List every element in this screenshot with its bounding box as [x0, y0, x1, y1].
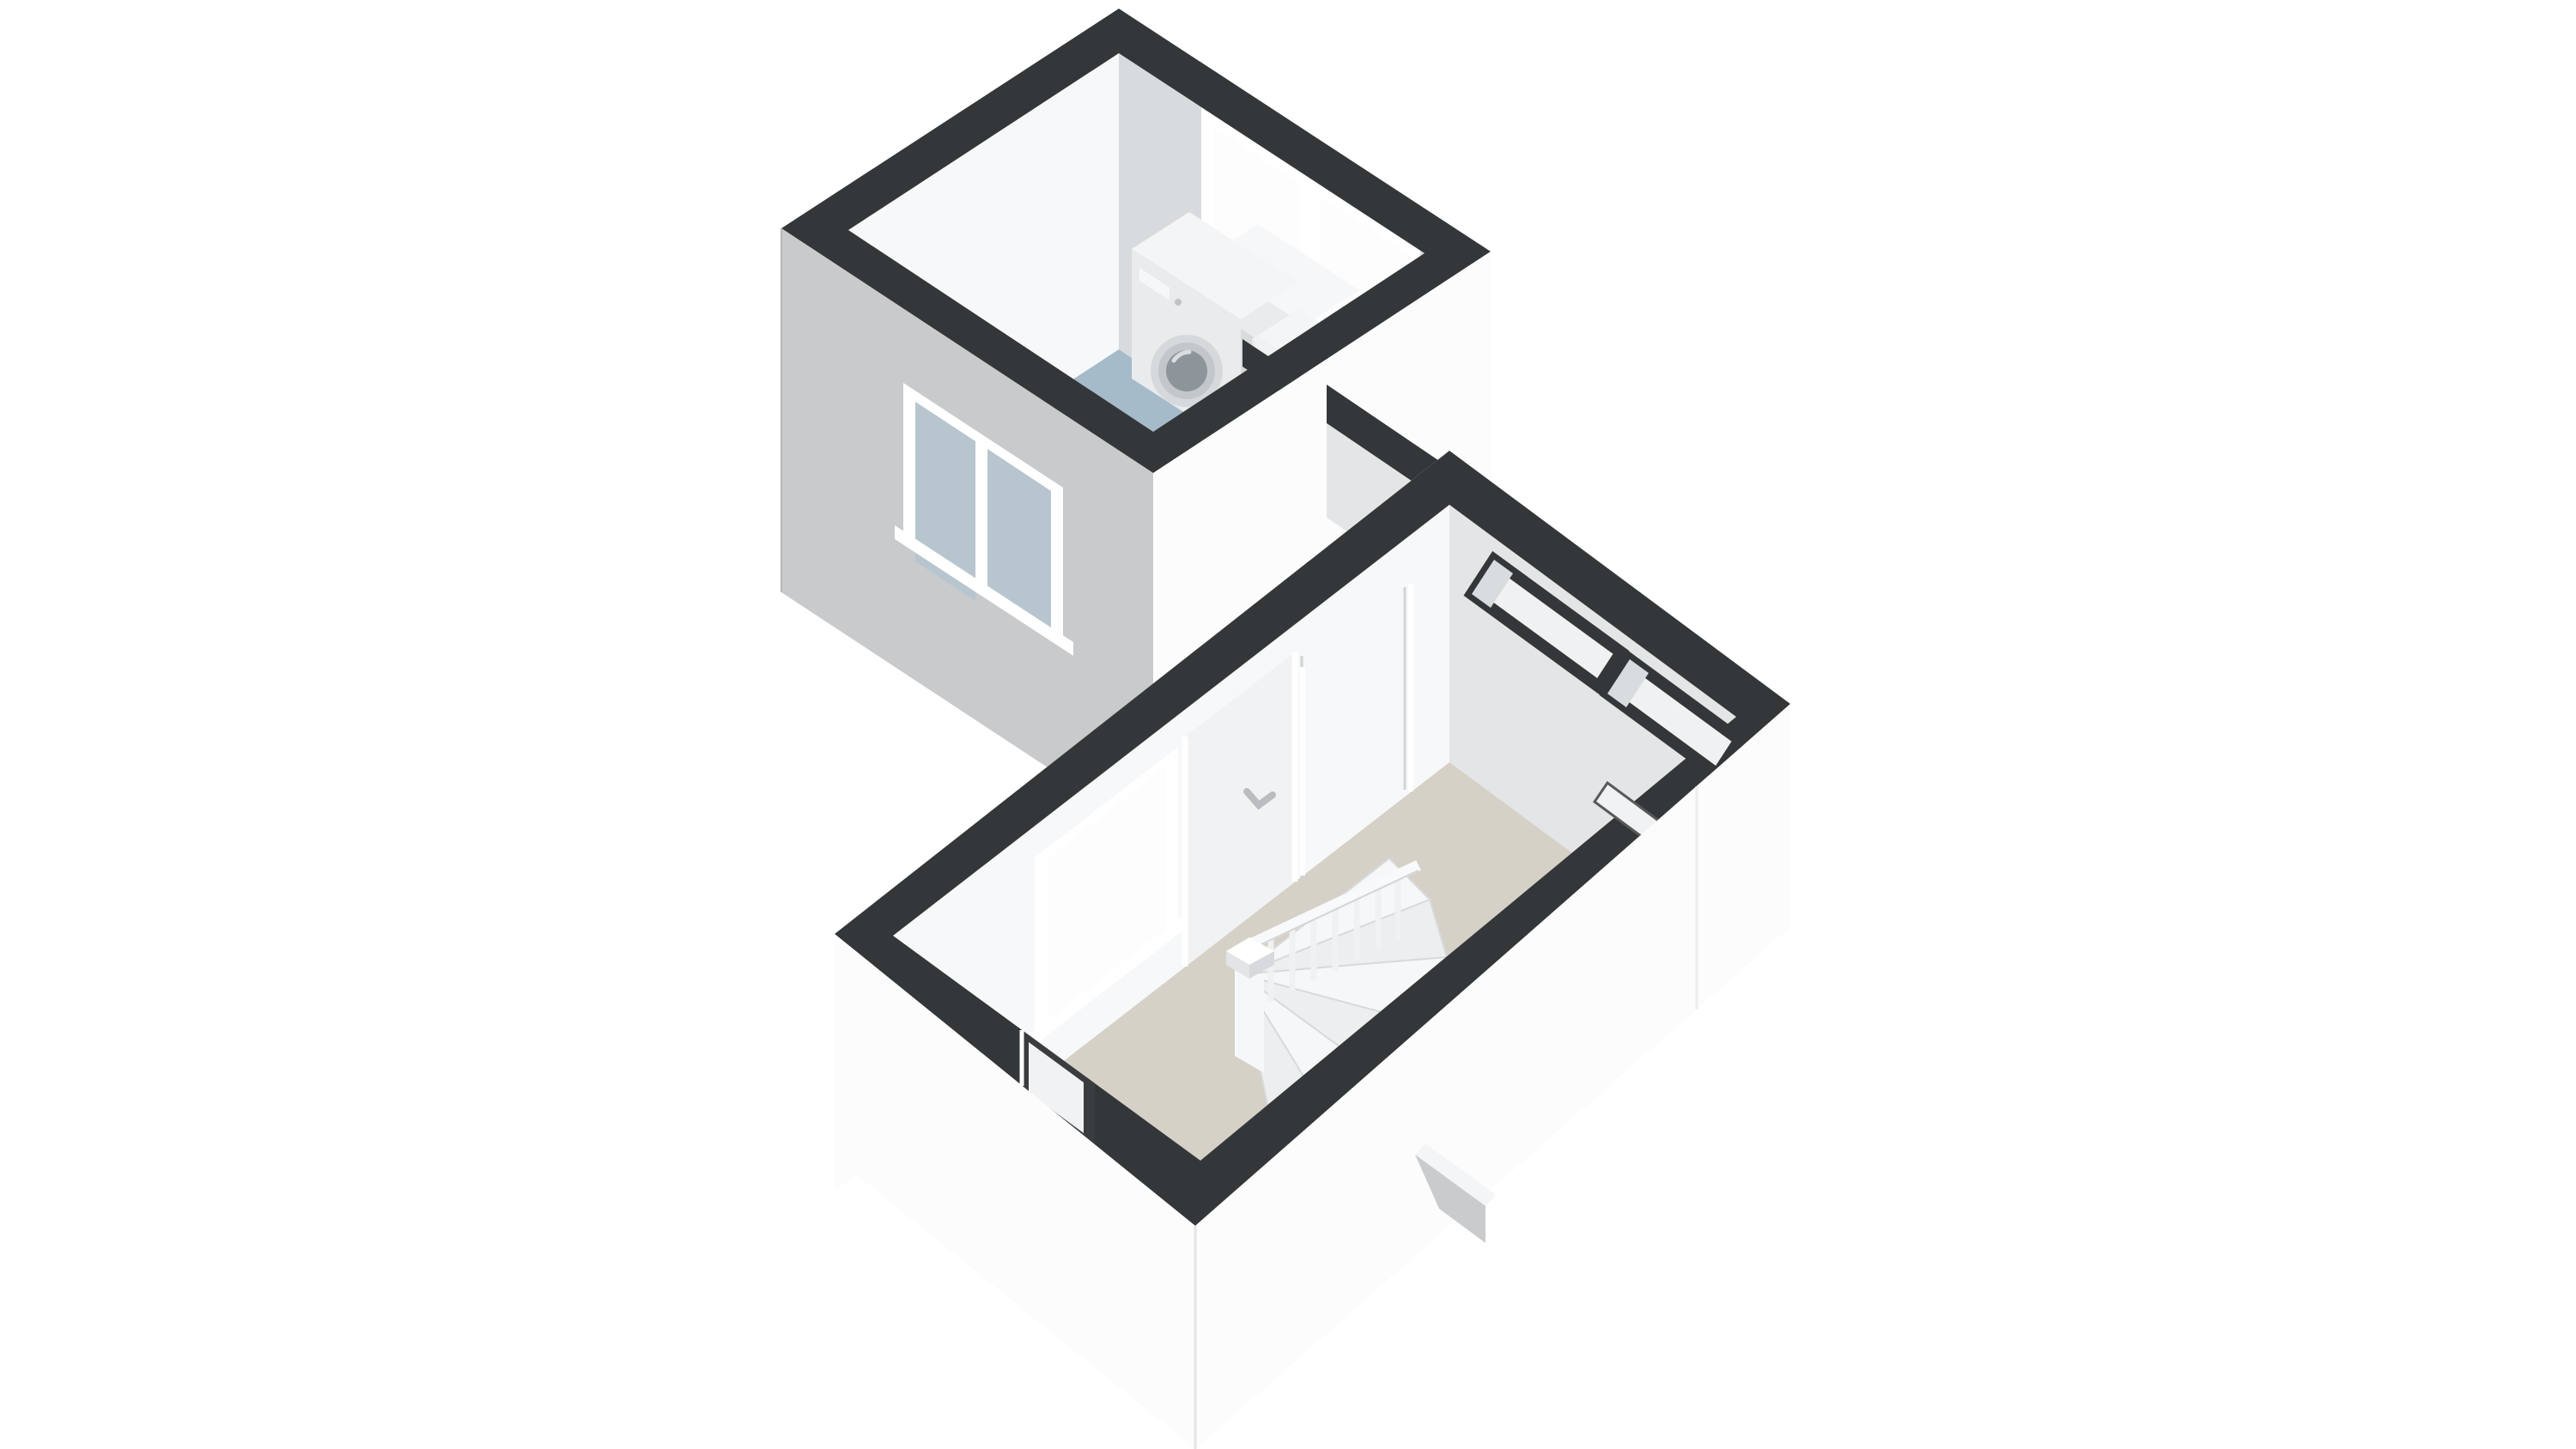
floorplan-render	[0, 0, 2576, 1449]
floorplan-stage	[0, 0, 2576, 1449]
washer-knob	[1175, 299, 1182, 306]
washer-door-glass	[1166, 350, 1207, 391]
